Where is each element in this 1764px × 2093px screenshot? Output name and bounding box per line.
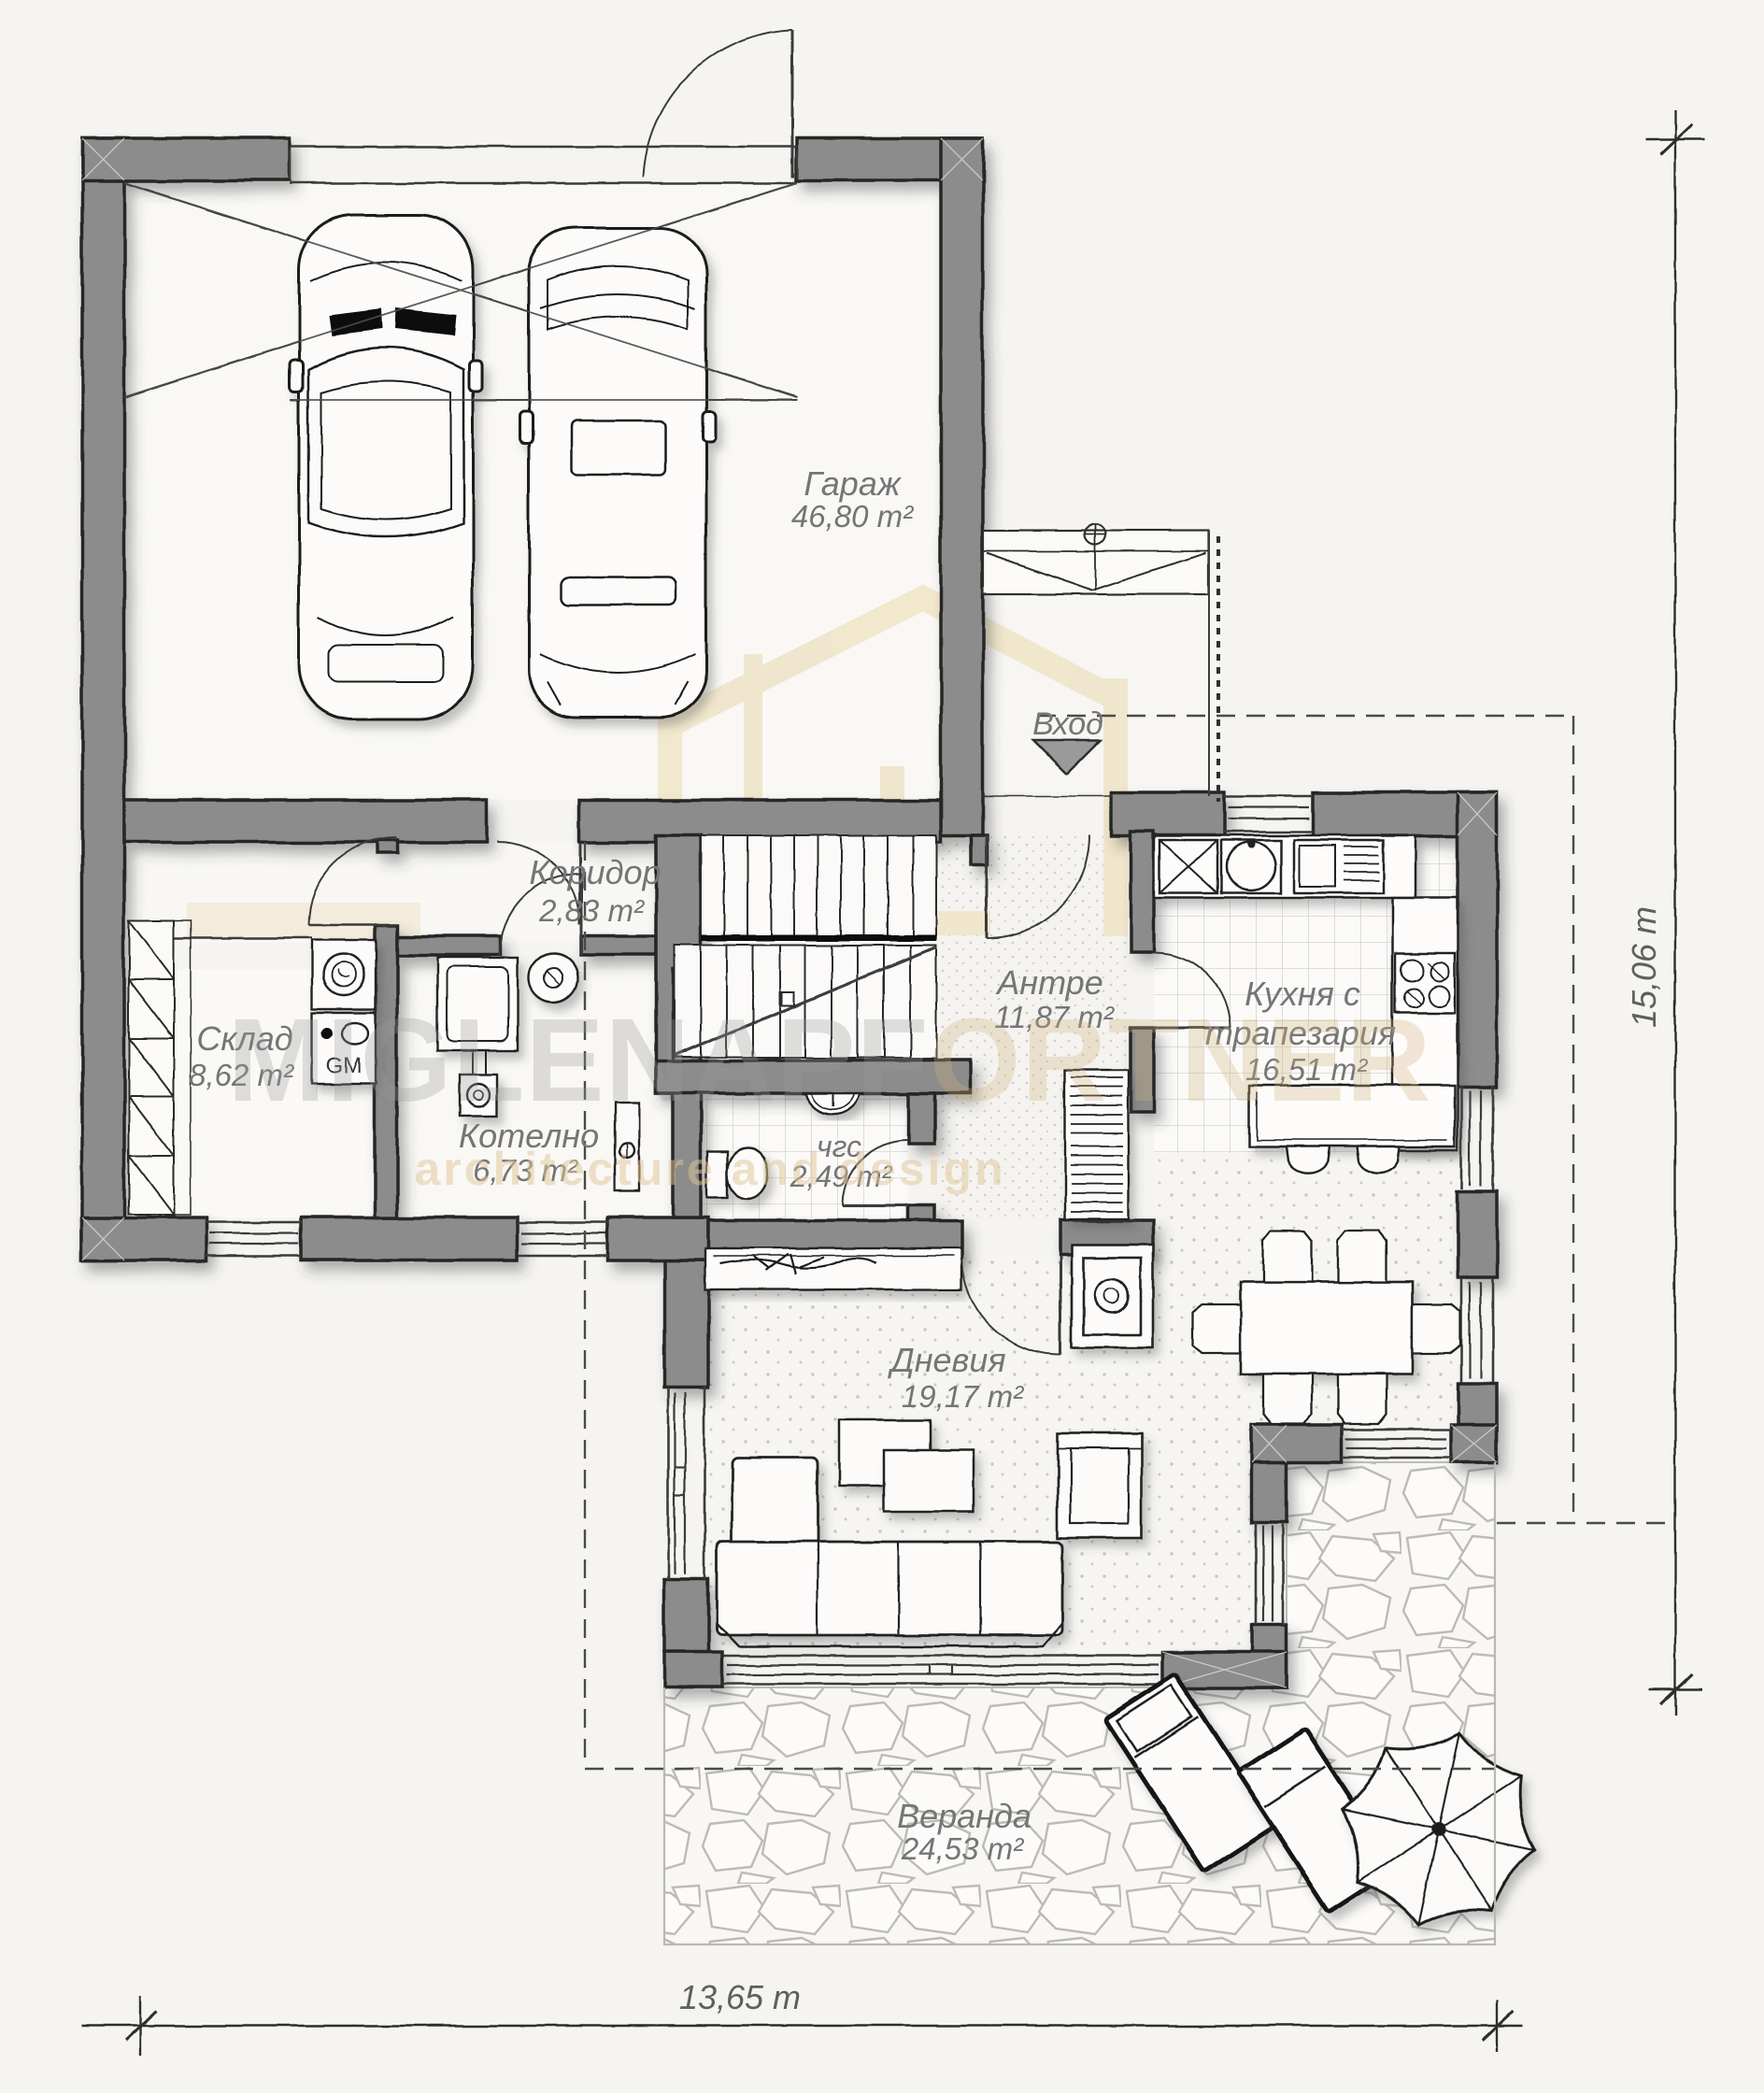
svg-text:19,17 m²: 19,17 m²: [902, 1379, 1024, 1414]
svg-text:Гараж: Гараж: [804, 464, 902, 503]
svg-text:46,80 m²: 46,80 m²: [791, 499, 914, 534]
svg-text:architecture and design: architecture and design: [414, 1143, 1005, 1195]
svg-text:24,53 m²: 24,53 m²: [901, 1831, 1024, 1866]
svg-text:Дневия: Дневия: [887, 1341, 1005, 1379]
svg-text:Веранда: Веранда: [897, 1797, 1031, 1835]
svg-text:Вход: Вход: [1032, 706, 1103, 742]
svg-text:MIGLENAPFORTNER: MIGLENAPFORTNER: [228, 994, 1432, 1126]
svg-text:13,65 m: 13,65 m: [679, 1978, 801, 2016]
svg-text:15,06 m: 15,06 m: [1625, 906, 1663, 1028]
svg-text:2,83 m²: 2,83 m²: [538, 893, 645, 928]
svg-text:Коридор: Коридор: [529, 853, 661, 891]
